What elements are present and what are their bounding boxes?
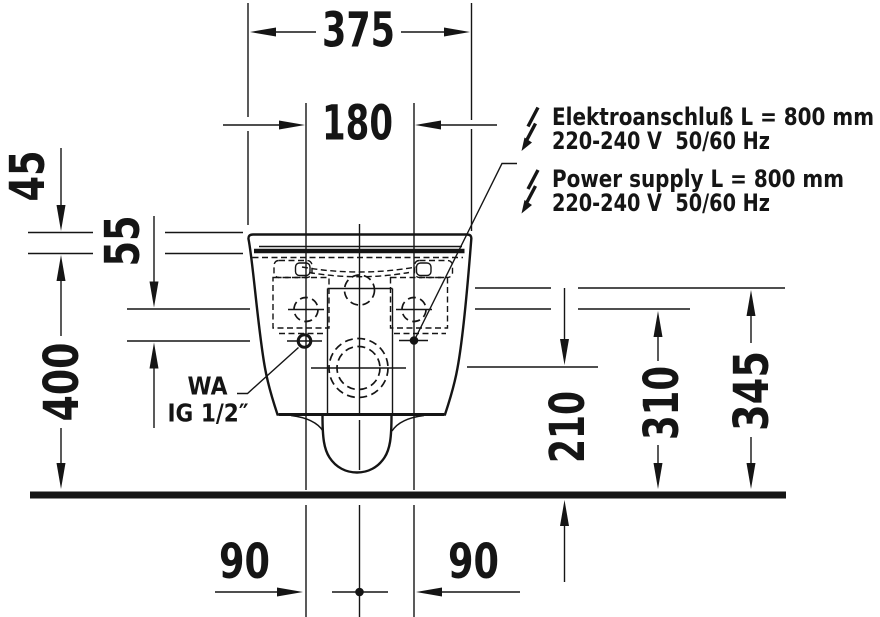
dim-180-value: 180: [322, 96, 393, 152]
dim-180-hinge-spacing: 180: [223, 96, 497, 152]
dim-210-outlet-height: 210: [540, 288, 596, 582]
water-label-thread: IG 1/2″: [168, 399, 249, 428]
hinge-pin-left: [296, 263, 311, 276]
dim-90-left: 90: [215, 534, 303, 597]
dim-210-value: 210: [540, 391, 596, 463]
dim-55-hole-offset: 55: [95, 216, 159, 429]
technical-drawing-page: 375 180 45 55 400 210 310: [0, 0, 880, 617]
outlet-spout: [323, 416, 392, 473]
dim-55-value: 55: [95, 216, 151, 267]
hinge-pin-right: [417, 263, 432, 276]
dim-90-left-value: 90: [219, 534, 270, 590]
dim-310-value: 310: [634, 366, 690, 440]
dim-45-value: 45: [0, 151, 56, 202]
dim-400-value: 400: [34, 343, 90, 422]
electrical-en-line2: 220-240 V 50/60 Hz: [552, 189, 770, 217]
dim-375-overall-width: 375: [250, 3, 470, 59]
leader-line-water: [237, 348, 299, 394]
dim-400-rim-height: 400: [34, 255, 90, 489]
water-label-abbr: WA: [188, 372, 229, 401]
lightning-bolt-icon: [522, 170, 539, 214]
electrical-label-german: Elektroanschluß L = 800 mm 220-240 V 50/…: [522, 103, 875, 155]
electrical-de-line2: 220-240 V 50/60 Hz: [552, 127, 770, 155]
water-connection-label: WA IG 1/2″: [168, 372, 249, 428]
dim-45-lid-thickness: 45: [0, 148, 66, 231]
electrical-label-english: Power supply L = 800 mm 220-240 V 50/60 …: [522, 165, 845, 217]
lightning-bolt-icon: [522, 108, 539, 152]
floor-line: [30, 492, 786, 499]
dim-345-value: 345: [724, 351, 780, 431]
dim-90-right: 90: [416, 534, 520, 597]
toilet-installation-drawing: 375 180 45 55 400 210 310: [0, 0, 880, 617]
dim-345-inlet-height: 345: [724, 290, 780, 489]
dim-310-fixing-height: 310: [634, 311, 690, 489]
dim-375-value: 375: [322, 3, 395, 59]
dim-90-right-value: 90: [448, 534, 499, 590]
mounting-panel-left: [273, 278, 329, 329]
dim-90-centre-mark: [332, 588, 388, 597]
